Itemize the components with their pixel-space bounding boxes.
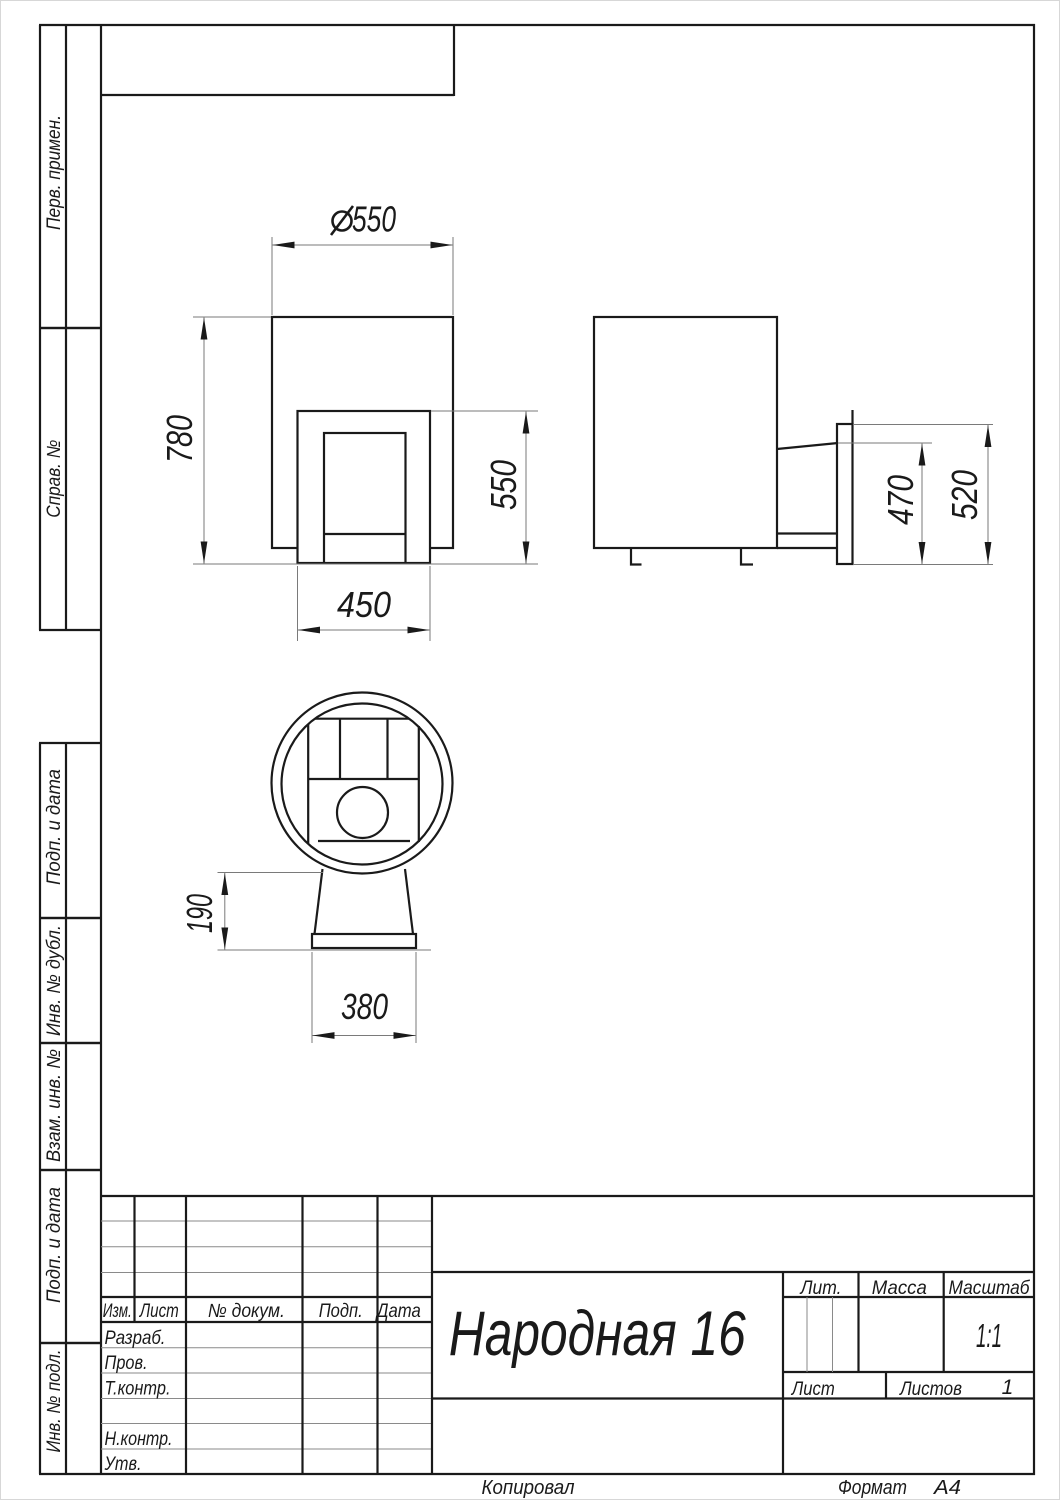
svg-text:Подп. и дата: Подп. и дата — [44, 1187, 65, 1303]
svg-text:Подп. и дата: Подп. и дата — [44, 769, 65, 885]
svg-text:А4: А4 — [933, 1477, 961, 1499]
svg-text:190: 190 — [179, 894, 220, 933]
svg-text:Копировал: Копировал — [482, 1477, 575, 1499]
svg-text:Подп.: Подп. — [319, 1301, 363, 1322]
svg-text:450: 450 — [337, 584, 391, 625]
svg-text:380: 380 — [341, 986, 388, 1027]
svg-text:Масса: Масса — [872, 1278, 927, 1299]
svg-text:Формат: Формат — [838, 1477, 907, 1499]
svg-text:Лист: Лист — [790, 1379, 835, 1400]
svg-text:Инв. № подл.: Инв. № подл. — [44, 1350, 65, 1453]
svg-text:Утв.: Утв. — [104, 1453, 142, 1475]
svg-text:Пров.: Пров. — [105, 1352, 148, 1374]
svg-text:Инв. № дубл.: Инв. № дубл. — [44, 925, 65, 1036]
svg-text:Изм.: Изм. — [103, 1301, 132, 1322]
svg-text:Разраб.: Разраб. — [105, 1327, 166, 1349]
svg-text:Листов: Листов — [898, 1379, 962, 1400]
svg-text:550: 550 — [483, 460, 524, 510]
svg-text:Н.контр.: Н.контр. — [105, 1428, 173, 1450]
svg-text:470: 470 — [880, 475, 921, 525]
svg-text:1:1: 1:1 — [976, 1317, 1002, 1354]
svg-text:Лит.: Лит. — [799, 1278, 842, 1299]
svg-text:Народная 16: Народная 16 — [449, 1299, 747, 1369]
svg-text:Дата: Дата — [375, 1301, 421, 1322]
svg-text:780: 780 — [159, 415, 200, 463]
svg-text:№ докум.: № докум. — [208, 1301, 285, 1322]
svg-text:1: 1 — [1002, 1376, 1014, 1399]
svg-text:Масштаб: Масштаб — [949, 1278, 1031, 1299]
svg-text:Лист: Лист — [138, 1301, 179, 1322]
svg-text:Перв. примен.: Перв. примен. — [44, 115, 65, 230]
svg-text:Т.контр.: Т.контр. — [105, 1378, 171, 1400]
svg-text:Взам. инв. №: Взам. инв. № — [44, 1049, 65, 1162]
svg-text:520: 520 — [944, 470, 985, 520]
svg-text:Справ. №: Справ. № — [44, 440, 65, 518]
svg-text:550: 550 — [352, 199, 396, 240]
